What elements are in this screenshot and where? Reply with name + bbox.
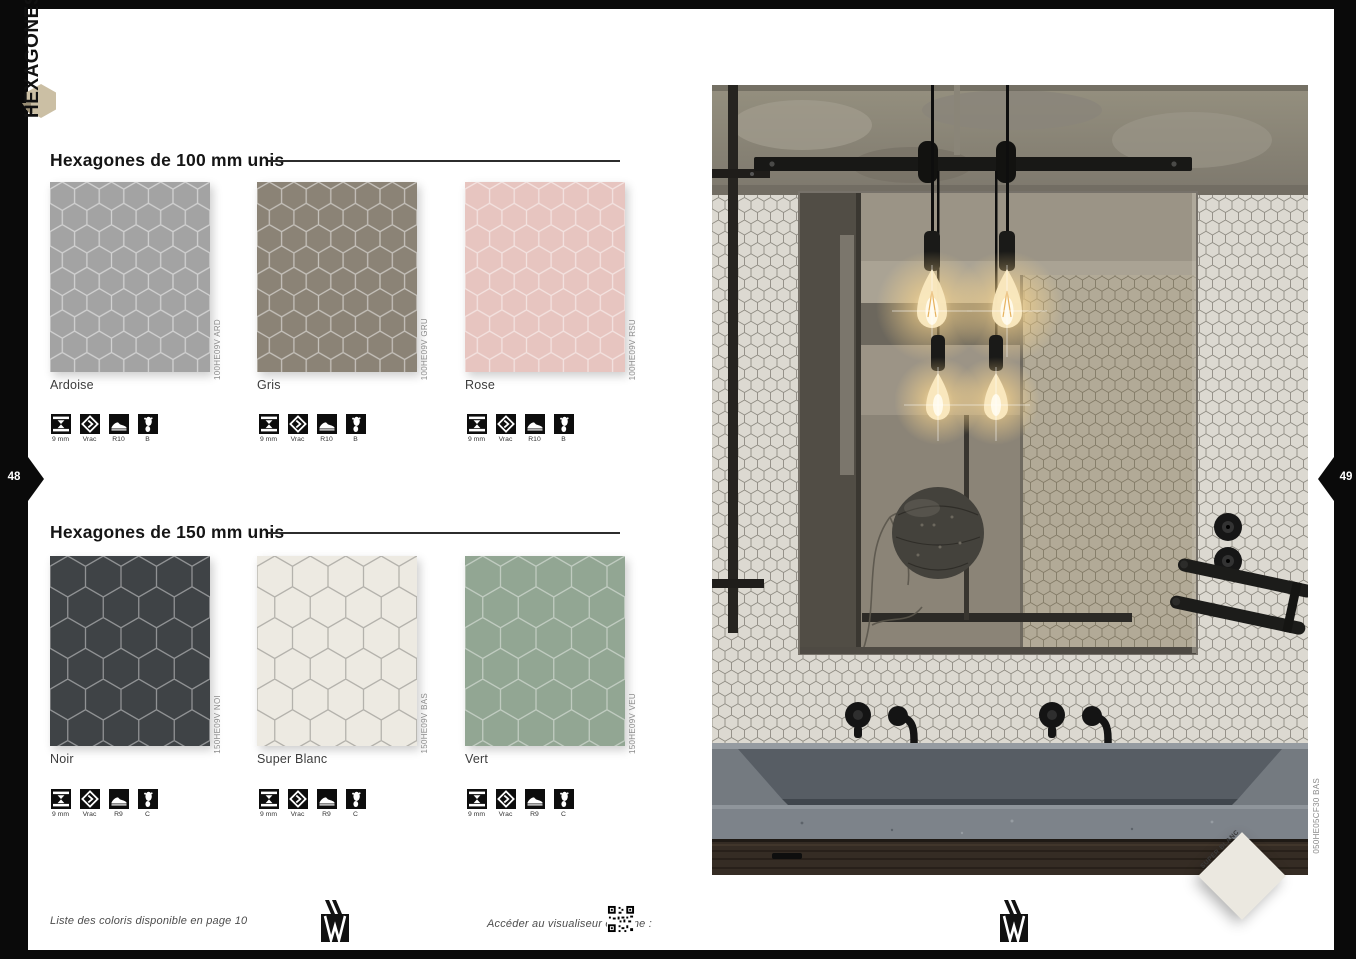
slip-shoe-icon [317, 414, 337, 434]
barefoot-icon [346, 789, 366, 809]
barefoot-icon [554, 789, 574, 809]
spec-label: 9 mm [52, 436, 69, 443]
spec-label: Vrac [291, 811, 305, 818]
bulk-icon [288, 789, 308, 809]
spec-label: B [145, 436, 150, 443]
barefoot-icon [138, 789, 158, 809]
section-rule [268, 532, 620, 534]
spec-label: Vrac [83, 436, 97, 443]
bulk-icon [288, 414, 308, 434]
slip-shoe-icon [109, 789, 129, 809]
spec-icons-ardoise: 9 mm Vrac R10 B [50, 414, 158, 443]
swatch-gris: 100HE09V GRU Gris [257, 182, 417, 392]
bulk-icon [496, 414, 516, 434]
thickness-icon [259, 414, 279, 434]
bathroom-photo [712, 85, 1308, 875]
bulk-icon [80, 789, 100, 809]
tile-swatch [50, 556, 210, 746]
spec-label: 9 mm [468, 436, 485, 443]
brand-logo [997, 899, 1031, 943]
tile-swatch [257, 556, 417, 746]
swatch-label: Super Blanc [257, 752, 417, 766]
slip-shoe-icon [109, 414, 129, 434]
swatch-label: Rose [465, 378, 625, 392]
section-title-100mm: Hexagones de 100 mm unis [50, 150, 284, 171]
product-code: 100HE09V ARD [213, 319, 222, 380]
slip-shoe-icon [525, 789, 545, 809]
thickness-icon [51, 789, 71, 809]
spec-label: B [561, 436, 566, 443]
spec-label: C [145, 811, 150, 818]
swatch-label: Vert [465, 752, 625, 766]
swatch-ardoise: 100HE09V ARD Ardoise [50, 182, 210, 392]
spec-label: 9 mm [468, 811, 485, 818]
spec-label: 9 mm [52, 811, 69, 818]
photo-product-code: 050HE05CF30 BAS [1312, 778, 1321, 854]
barefoot-icon [554, 414, 574, 434]
spec-label: R9 [114, 811, 123, 818]
section-rule [268, 160, 620, 162]
spec-icons-vert: 9 mm Vrac R9 C [466, 789, 574, 818]
barefoot-icon [346, 414, 366, 434]
bulk-icon [80, 414, 100, 434]
spec-label: 9 mm [260, 811, 277, 818]
tile-swatch [50, 182, 210, 372]
swatch-label: Gris [257, 378, 417, 392]
spec-label: R10 [320, 436, 332, 443]
catalog-spread: 48 49 HEXAGONES Hexagones de 100 mm unis… [0, 0, 1356, 959]
spec-label: 9 mm [260, 436, 277, 443]
thickness-icon [259, 789, 279, 809]
frame-bottom [0, 950, 1356, 959]
spec-label: R9 [322, 811, 331, 818]
spec-icons-gris: 9 mm Vrac R10 B [258, 414, 366, 443]
spec-label: C [561, 811, 566, 818]
tile-swatch [465, 556, 625, 746]
tile-swatch [465, 182, 625, 372]
page-number-right: 49 [1334, 471, 1356, 483]
spec-label: R10 [528, 436, 540, 443]
product-code: 100HE09V GRU [420, 318, 429, 380]
swatch-vert: 150HE09V VEU Vert [465, 556, 625, 766]
spec-label: R10 [112, 436, 124, 443]
swatch-noir: 150HE09V NOI Noir [50, 556, 210, 766]
barefoot-icon [138, 414, 158, 434]
brand-logo [318, 899, 352, 943]
swatch-rose: 100HE09V RSU Rose [465, 182, 625, 392]
qr-code [607, 905, 635, 933]
product-code: 150HE09V VEU [628, 693, 637, 754]
thickness-icon [467, 789, 487, 809]
thickness-icon [467, 414, 487, 434]
category-title: HEXAGONES [22, 14, 44, 118]
swatch-label: Noir [50, 752, 210, 766]
page-tab-right-arrow [1318, 457, 1334, 501]
thickness-icon [51, 414, 71, 434]
spec-label: B [353, 436, 358, 443]
spec-icons-rose: 9 mm Vrac R10 B [466, 414, 574, 443]
spec-label: R9 [530, 811, 539, 818]
frame-top [0, 0, 1356, 9]
swatch-super-blanc: 150HE09V BAS Super Blanc [257, 556, 417, 766]
product-code: 100HE09V RSU [628, 319, 637, 380]
section-title-150mm: Hexagones de 150 mm unis [50, 522, 284, 543]
slip-shoe-icon [317, 789, 337, 809]
slip-shoe-icon [525, 414, 545, 434]
spec-icons-super-blanc: 9 mm Vrac R9 C [258, 789, 366, 818]
swatch-label: Ardoise [50, 378, 210, 392]
page-number-left: 48 [2, 471, 26, 483]
spec-label: Vrac [499, 811, 513, 818]
tile-swatch [257, 182, 417, 372]
colors-note: Liste des coloris disponible en page 10 [50, 915, 247, 927]
spec-label: Vrac [83, 811, 97, 818]
product-code: 150HE09V BAS [420, 693, 429, 754]
spec-label: Vrac [499, 436, 513, 443]
bulk-icon [496, 789, 516, 809]
spec-label: Vrac [291, 436, 305, 443]
page-tab-left-arrow [28, 457, 44, 501]
product-code: 150HE09V NOI [213, 695, 222, 754]
spec-icons-noir: 9 mm Vrac R9 C [50, 789, 158, 818]
spec-label: C [353, 811, 358, 818]
